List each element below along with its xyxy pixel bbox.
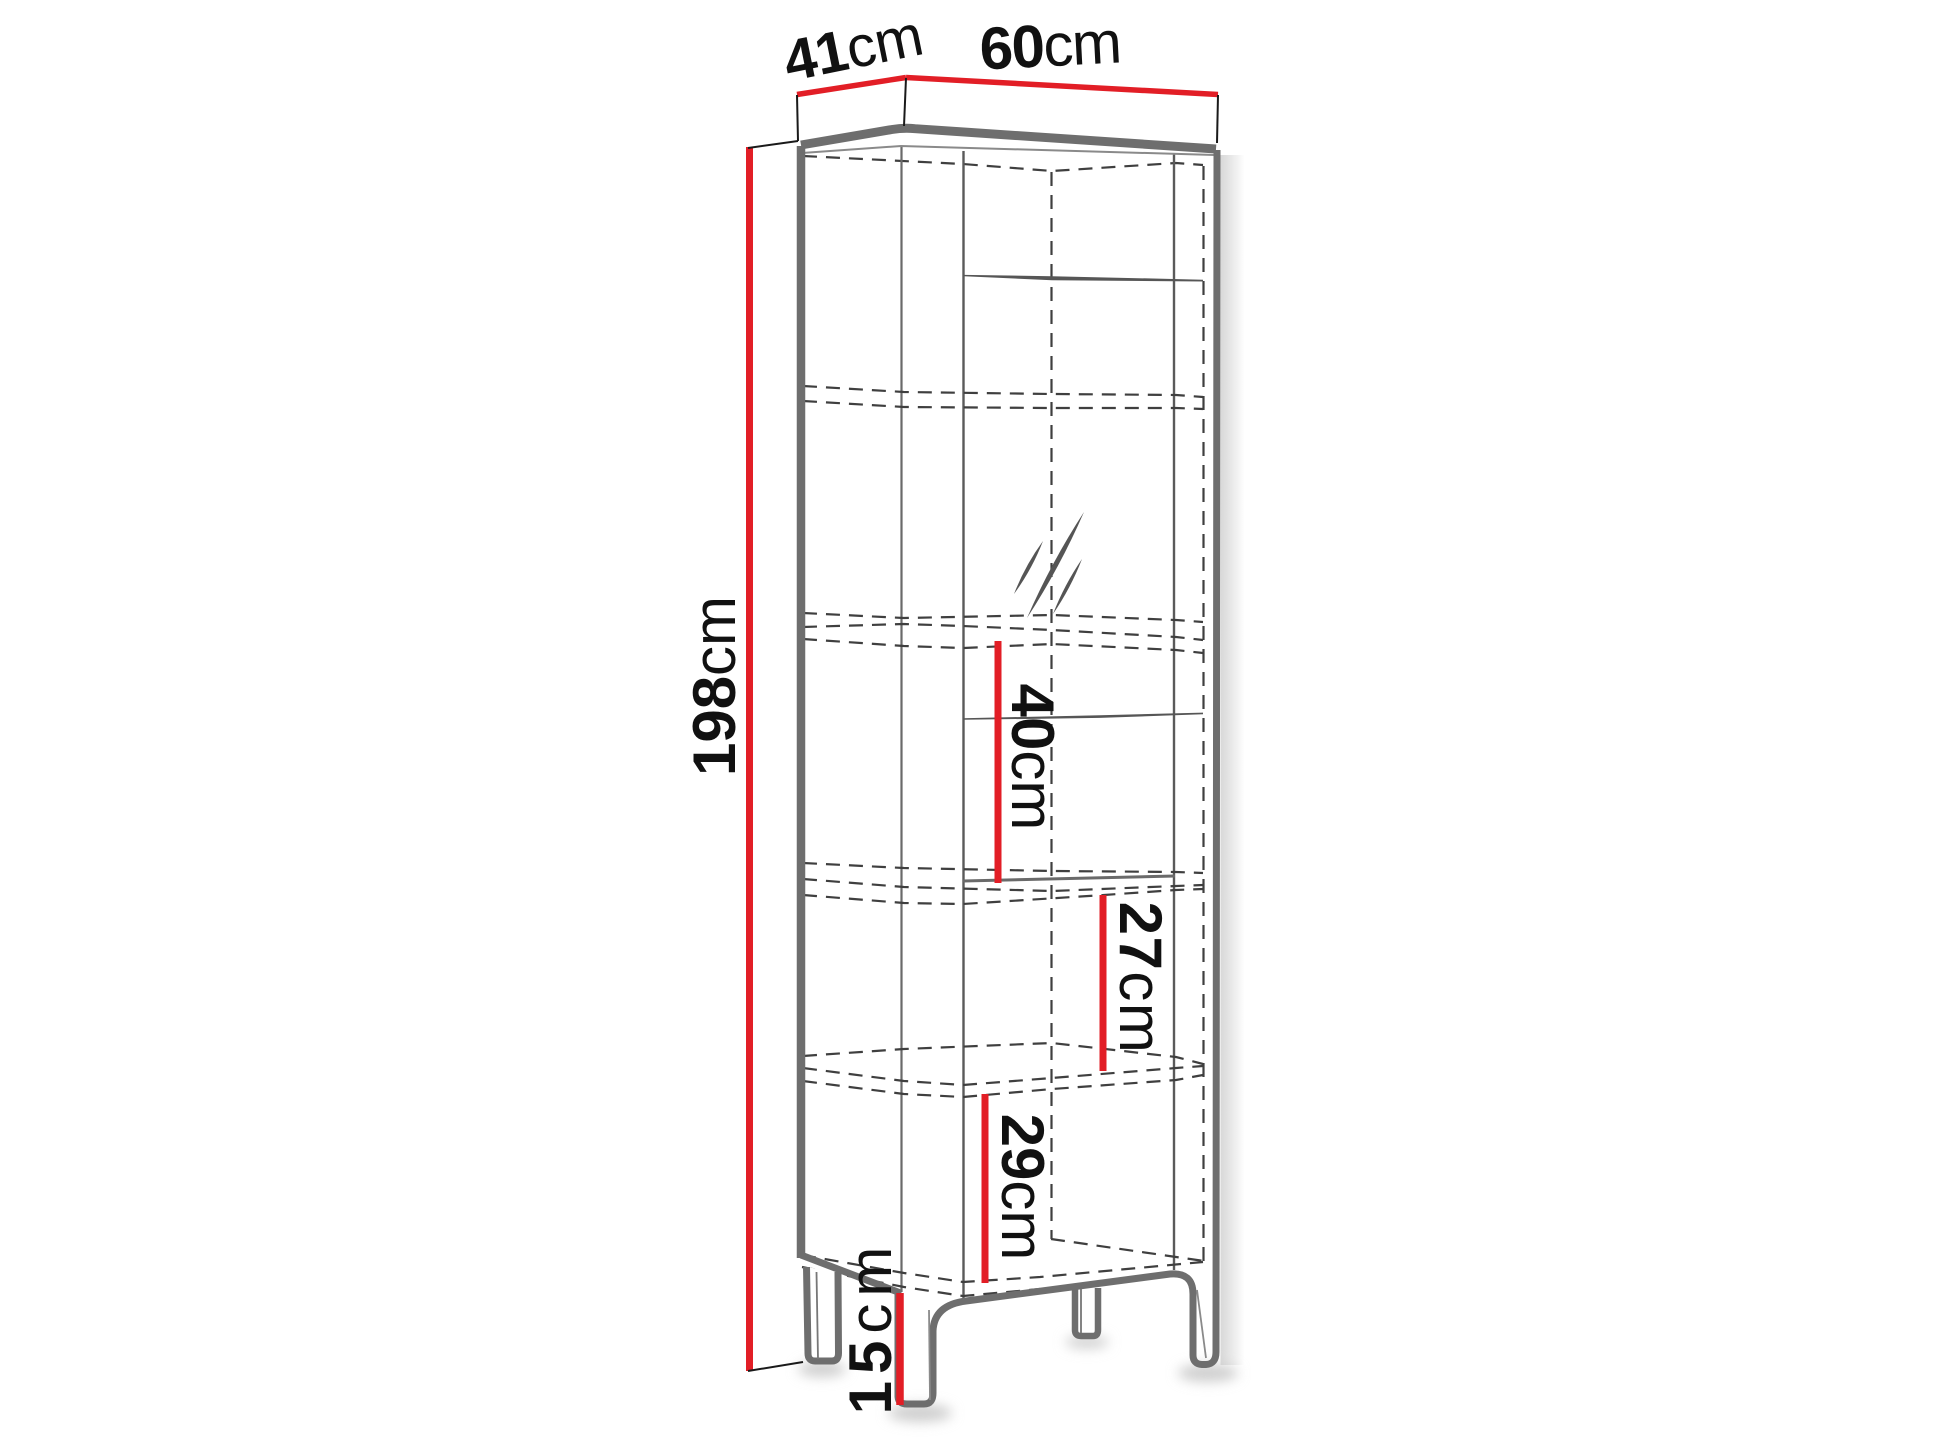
svg-text:198cm: 198cm: [681, 596, 748, 776]
svg-text:29cm: 29cm: [989, 1114, 1056, 1261]
svg-text:27cm: 27cm: [1107, 902, 1174, 1055]
svg-text:15cm: 15cm: [837, 1240, 904, 1415]
svg-text:60cm: 60cm: [978, 8, 1122, 82]
svg-text:40cm: 40cm: [999, 684, 1066, 831]
